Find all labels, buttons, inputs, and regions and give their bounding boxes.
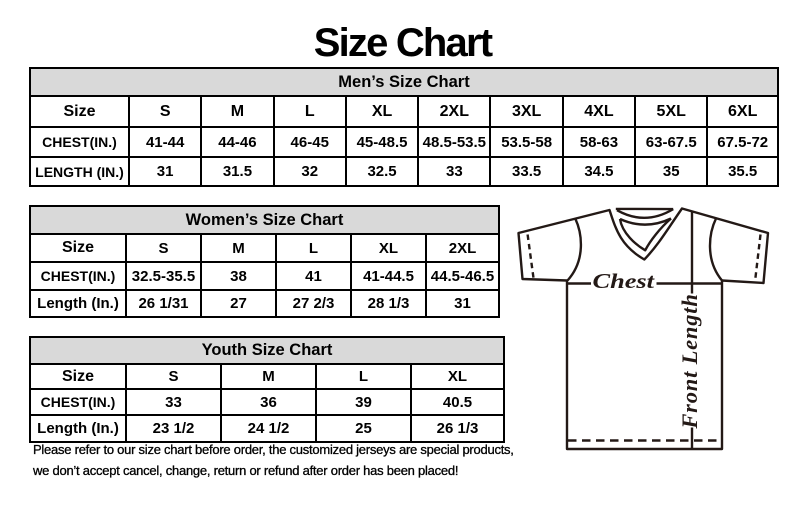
svg-text:Front Length: Front Length (677, 293, 702, 429)
svg-text:Chest: Chest (593, 269, 656, 293)
